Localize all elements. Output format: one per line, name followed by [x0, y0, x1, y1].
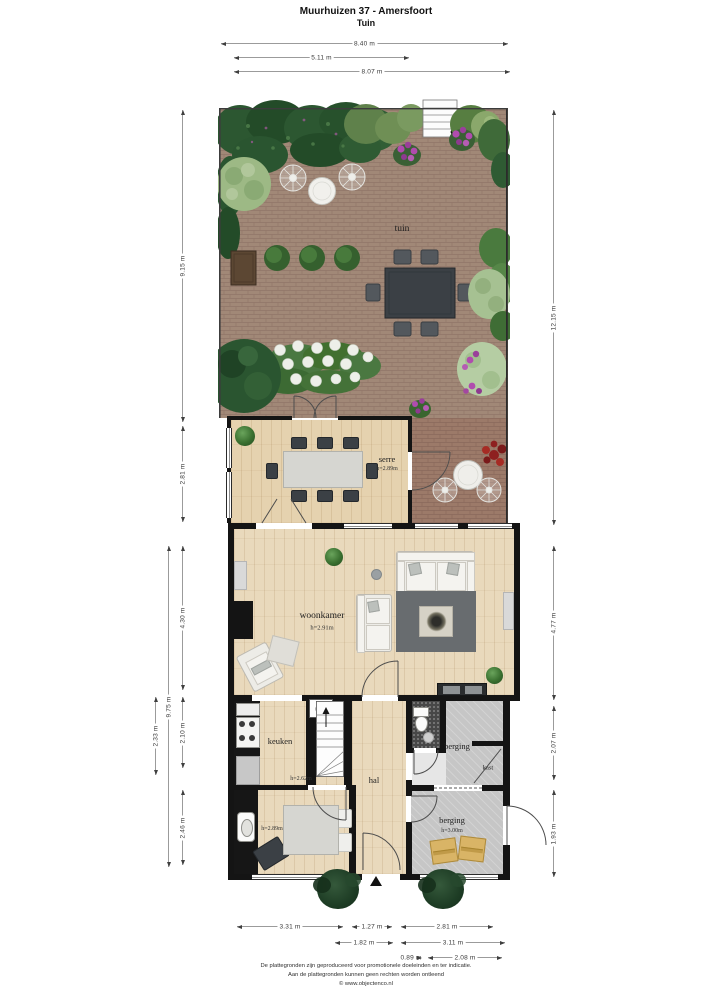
- dim-label: 2.46 m: [180, 815, 187, 840]
- title-block: Muurhuizen 37 - Amersfoort Tuin: [25, 6, 707, 28]
- chair: [291, 490, 307, 502]
- dim-bottom-1: 3.31 m: [237, 926, 343, 927]
- sink: [237, 812, 255, 842]
- window: [468, 523, 512, 529]
- sofa: [396, 551, 474, 593]
- dim-label: 1.27 m: [359, 924, 384, 931]
- wall-segment: [349, 785, 356, 874]
- wall-segment: [228, 874, 252, 880]
- dim-label: 8.07 m: [359, 69, 384, 76]
- burner: [239, 721, 245, 727]
- chair: [343, 490, 359, 502]
- trap-onder-strip: [316, 777, 344, 785]
- window: [344, 523, 392, 529]
- room-label-tuin: tuin: [395, 224, 410, 234]
- garden-wall-top: [219, 108, 507, 109]
- dim-label: 2.81 m: [434, 924, 459, 931]
- wall-segment: [406, 785, 434, 791]
- chair: [291, 437, 307, 449]
- sink-basin: [241, 819, 253, 837]
- room-height-woonkamer: h=2.91m: [310, 625, 333, 632]
- potted-plant: [325, 548, 343, 566]
- dim-label: 1.93 m: [551, 821, 558, 846]
- garden-wall-right: [506, 108, 508, 523]
- room-label-woonkamer: woonkamer: [300, 611, 345, 621]
- dim-label: 0.89 m: [398, 955, 423, 962]
- dim-label: 2.10 m: [180, 720, 187, 745]
- wall-segment: [312, 523, 344, 529]
- window: [415, 523, 458, 529]
- burner: [249, 721, 255, 727]
- chair: [266, 463, 278, 479]
- dim-left-keuken-breed: 2.33 m: [155, 697, 156, 775]
- dim-left-woonkamer: 4.30 m: [182, 546, 183, 690]
- door-berging-exterior: [507, 806, 546, 845]
- dim-left-keuken: 2.10 m: [182, 697, 183, 768]
- wall-segment: [227, 416, 292, 420]
- footer-line: © www.objectenco.nl: [25, 980, 707, 989]
- chimney: [228, 601, 253, 639]
- chair: [343, 437, 359, 449]
- rug-ornament: [426, 611, 447, 632]
- wall-segment: [406, 701, 412, 750]
- dim-label: 3.11 m: [441, 940, 466, 947]
- pillow: [408, 562, 422, 576]
- sideboard: [437, 683, 487, 696]
- wall-segment: [344, 701, 352, 785]
- burner: [239, 735, 245, 741]
- sideboard-panel: [465, 686, 482, 694]
- rug: [396, 591, 476, 652]
- sofa-cushion: [366, 625, 390, 650]
- stove: [236, 717, 260, 748]
- wc-sink: [423, 732, 434, 743]
- dim-label: 5.11 m: [309, 55, 334, 62]
- dim-left-serre: 2.81 m: [182, 426, 183, 522]
- dim-label: 4.77 m: [551, 610, 558, 635]
- dim-left-garden: 9.15 m: [182, 110, 183, 422]
- pillow: [367, 600, 380, 613]
- dim-top-3: 8.07 m: [234, 71, 510, 72]
- sofa-arm: [467, 561, 475, 594]
- dim-label: 9.75 m: [166, 694, 173, 719]
- dim-right-berging1: 2.07 m: [553, 706, 554, 780]
- storage-box: [429, 837, 458, 864]
- wall-segment: [408, 490, 412, 523]
- dim-bottom-5: 3.11 m: [401, 942, 505, 943]
- dim-bottom-2: 1.27 m: [352, 926, 392, 927]
- room-label-berging-boven: berging: [444, 741, 470, 751]
- wall-segment: [458, 523, 468, 529]
- sideboard-panel: [443, 686, 460, 694]
- storage-box: [458, 836, 487, 863]
- wall-segment: [406, 748, 414, 753]
- dim-left-overall: 9.75 m: [168, 546, 169, 867]
- wall-segment: [406, 822, 412, 874]
- room-label-keuken: keuken: [268, 736, 293, 746]
- dim-bottom-6: 0.89 m: [400, 957, 422, 958]
- sofa-arm: [397, 561, 405, 594]
- dim-top-overall: 8.40 m: [221, 43, 508, 44]
- room-height-berging-onder: h=3.00m: [441, 828, 463, 834]
- tree-left: [218, 157, 271, 211]
- hal-floor: [352, 701, 406, 874]
- staircase: [316, 701, 344, 777]
- page-title: Muurhuizen 37 - Amersfoort: [25, 6, 707, 17]
- room-height-kamer: h=2.89m: [261, 826, 283, 832]
- dim-label: 8.40 m: [352, 41, 377, 48]
- wall-segment: [472, 741, 503, 746]
- tree: [422, 869, 464, 909]
- dim-right-berging2: 1.93 m: [553, 790, 554, 877]
- dining-table: [283, 451, 363, 488]
- kitchen-sink: [236, 703, 260, 716]
- wall-segment: [400, 874, 420, 880]
- bush-right-flowers: [457, 342, 507, 396]
- window: [226, 428, 232, 468]
- wall-segment: [338, 416, 412, 420]
- dim-label: 2.81 m: [180, 461, 187, 486]
- coat-hook: [354, 824, 357, 827]
- dim-label: 4.30 m: [180, 605, 187, 630]
- dim-left-kamer: 2.46 m: [182, 790, 183, 865]
- room-height-keuken: h=2.62m: [290, 776, 312, 782]
- burner: [249, 735, 255, 741]
- dim-label: 1.82 m: [351, 940, 376, 947]
- entrance-arrow: [370, 876, 382, 886]
- dim-label: 9.15 m: [180, 253, 187, 278]
- round-bushes: [264, 245, 360, 271]
- radiator: [503, 592, 514, 630]
- appliance: [236, 756, 260, 785]
- table: [283, 805, 339, 855]
- chair: [317, 490, 333, 502]
- potted-plant: [486, 667, 503, 684]
- room-label-kast: kast: [483, 765, 493, 772]
- dim-bottom-4: 1.82 m: [335, 942, 393, 943]
- sofa-back: [397, 552, 475, 561]
- footer-disclaimer: De plattegronden zijn geproduceerd voor …: [25, 962, 707, 989]
- garden-wall-left: [219, 108, 221, 418]
- wall-segment: [514, 523, 520, 701]
- room-label-hal: hal: [369, 775, 379, 785]
- window: [226, 472, 232, 518]
- footer-line: Aan de plattegronden kunnen geen rechten…: [25, 971, 707, 980]
- room-label-berging-onder: berging: [439, 815, 465, 825]
- dim-right-tuin: 12.15 m: [553, 110, 554, 525]
- coat-hook: [354, 832, 357, 835]
- floorplan-page: Muurhuizen 37 - Amersfoort Tuin 8.40 m 5…: [0, 0, 707, 1000]
- chair: [317, 437, 333, 449]
- garden-planter: [231, 251, 256, 285]
- footer-line: De plattegronden zijn geproduceerd voor …: [25, 962, 707, 971]
- wall-segment: [408, 416, 412, 452]
- dim-bottom-3: 2.81 m: [401, 926, 493, 927]
- dim-label: 2.33 m: [153, 723, 160, 748]
- dim-label: 12.15 m: [551, 303, 558, 332]
- ceiling-light: [371, 569, 382, 580]
- dim-label: 2.07 m: [551, 730, 558, 755]
- wall-niche: [234, 561, 247, 590]
- room-height-serre: h=2.89m: [376, 466, 398, 472]
- gang-floor: [412, 753, 446, 785]
- dim-bottom-7: 2.08 m: [428, 957, 502, 958]
- page-subtitle: Tuin: [25, 18, 707, 28]
- dim-right-woonkamer: 4.77 m: [553, 546, 554, 700]
- sofa: [356, 594, 392, 652]
- sofa-back: [357, 595, 365, 653]
- dim-top-2: 5.11 m: [234, 57, 409, 58]
- coat-hook: [354, 808, 357, 811]
- tree: [317, 869, 359, 909]
- wall-segment: [482, 785, 510, 791]
- potted-plant: [235, 426, 255, 446]
- room-label-serre: serre: [379, 454, 396, 464]
- dim-label: 2.08 m: [452, 955, 477, 962]
- wall-segment: [392, 523, 415, 529]
- pillow: [446, 562, 460, 576]
- wall-segment: [498, 874, 510, 880]
- dim-label: 3.31 m: [277, 924, 302, 931]
- coat-hook: [354, 816, 357, 819]
